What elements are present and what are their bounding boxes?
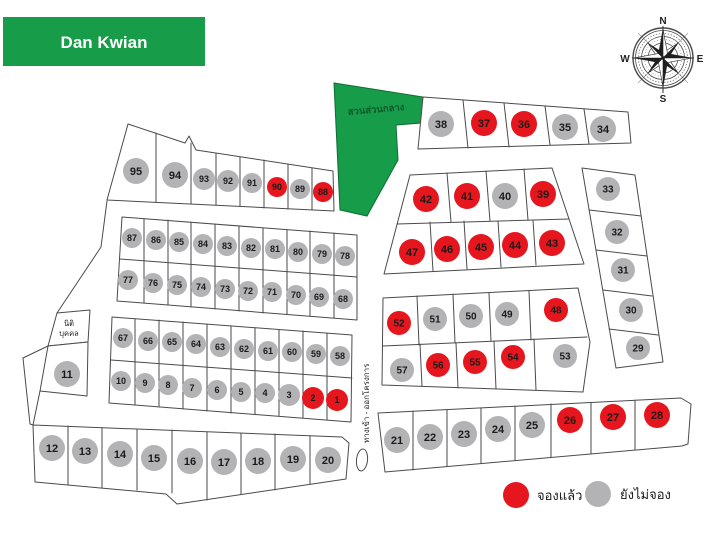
plot-1-number: 1: [334, 395, 339, 405]
plot-23-number: 23: [458, 429, 470, 441]
plot-84: 84: [193, 234, 213, 254]
plot-91: 91: [242, 173, 262, 193]
plot-44-number: 44: [509, 240, 522, 252]
entrance-road: ทางเข้า - ออกโครงการ: [355, 363, 371, 472]
plot-86: 86: [146, 230, 166, 250]
plot-90: 90: [267, 177, 287, 197]
plot-33-number: 33: [602, 185, 614, 196]
plot-25: 25: [519, 412, 545, 438]
plot-6-number: 6: [214, 385, 219, 395]
plot-69: 69: [309, 287, 329, 307]
plot-9: 9: [135, 373, 155, 393]
plot-62-number: 62: [239, 344, 249, 354]
plot-22: 22: [417, 424, 443, 450]
plot-88: 88: [313, 182, 333, 202]
plot-48-number: 48: [550, 306, 562, 317]
plot-67-number: 67: [118, 333, 128, 343]
plot-65-number: 65: [167, 337, 177, 347]
plot-81: 81: [265, 239, 285, 259]
plot-92: 92: [217, 170, 239, 192]
plot-3: 3: [278, 384, 300, 406]
plot-78-number: 78: [340, 251, 350, 261]
plot-25-number: 25: [526, 420, 538, 432]
plot-16: 16: [177, 448, 203, 474]
plot-4-number: 4: [262, 388, 267, 398]
plot-85: 85: [169, 232, 189, 252]
plot-31: 31: [611, 258, 635, 282]
plot-42: 42: [413, 186, 439, 212]
plot-15: 15: [141, 445, 167, 471]
site-plan-page: Dan Kwian: [0, 0, 720, 533]
plot-47: 47: [399, 239, 425, 265]
plot-50-number: 50: [465, 312, 477, 323]
plot-42-number: 42: [420, 194, 432, 206]
plot-53: 53: [553, 344, 577, 368]
legend-available-swatch: [585, 481, 611, 507]
plot-79: 79: [312, 244, 332, 264]
plot-39: 39: [530, 181, 556, 207]
plot-20: 20: [315, 447, 341, 473]
plot-56: 56: [426, 353, 450, 377]
compass-south-label: S: [660, 94, 667, 105]
plot-35: 35: [552, 114, 578, 140]
plot-8-number: 8: [165, 380, 170, 390]
plot-10-number: 10: [116, 376, 126, 386]
legend-available-label: ยังไม่จอง: [620, 487, 671, 502]
plot-2: 2: [302, 387, 324, 409]
plot-76: 76: [143, 273, 163, 293]
plot-67: 67: [113, 328, 133, 348]
plot-45-number: 45: [475, 242, 487, 254]
plot-62: 62: [234, 339, 254, 359]
compass-north-label: N: [659, 16, 666, 27]
plot-10: 10: [111, 371, 131, 391]
plot-72: 72: [238, 281, 258, 301]
site-map: Dan Kwian: [0, 0, 720, 533]
plot-34-number: 34: [597, 124, 610, 136]
plot-49-number: 49: [501, 310, 513, 321]
plot-6: 6: [207, 380, 227, 400]
plot-59: 59: [306, 344, 326, 364]
plot-74-number: 74: [196, 282, 206, 292]
plot-36-number: 36: [518, 119, 530, 131]
plot-55-number: 55: [469, 358, 481, 369]
plot-82: 82: [241, 238, 261, 258]
plot-55: 55: [463, 350, 487, 374]
plot-7-number: 7: [189, 383, 194, 393]
plot-90-number: 90: [272, 182, 282, 192]
plot-45: 45: [468, 234, 494, 260]
plot-34: 34: [590, 116, 616, 142]
plot-15-number: 15: [148, 453, 160, 465]
plot-77-number: 77: [123, 275, 133, 285]
plot-32: 32: [605, 220, 629, 244]
plot-13-number: 13: [79, 446, 91, 458]
plot-32-number: 32: [611, 228, 623, 239]
plot-78: 78: [335, 246, 355, 266]
plot-11-number: 11: [61, 369, 73, 381]
plot-94: 94: [162, 162, 188, 188]
plot-73-number: 73: [220, 284, 230, 294]
parcel-juristic-person: [48, 310, 90, 346]
plot-86-number: 86: [151, 235, 161, 245]
plot-92-number: 92: [223, 176, 233, 186]
plot-1: 1: [326, 389, 348, 411]
plot-29-number: 29: [632, 344, 644, 355]
plot-54-number: 54: [507, 353, 519, 364]
plot-89: 89: [290, 179, 310, 199]
plot-46-number: 46: [441, 244, 453, 256]
plot-65: 65: [162, 332, 182, 352]
plot-26: 26: [557, 407, 583, 433]
plot-70-number: 70: [291, 290, 301, 300]
plot-38: 38: [428, 111, 454, 137]
plot-13: 13: [72, 438, 98, 464]
plot-9-number: 9: [142, 378, 147, 388]
plot-80-number: 80: [293, 247, 303, 257]
plot-63: 63: [210, 337, 230, 357]
plot-5-number: 5: [238, 387, 243, 397]
plot-18-number: 18: [252, 456, 264, 468]
plot-36: 36: [511, 111, 537, 137]
juristic-person-label-line1: นิติ: [64, 319, 74, 328]
plot-19: 19: [280, 446, 306, 472]
plot-76-number: 76: [148, 278, 158, 288]
plot-59-number: 59: [311, 349, 321, 359]
plot-68-number: 68: [338, 294, 348, 304]
plot-2-number: 2: [310, 393, 315, 403]
plot-83: 83: [217, 236, 237, 256]
entrance-island: [355, 448, 368, 471]
plot-80: 80: [288, 242, 308, 262]
plot-22-number: 22: [424, 432, 436, 444]
plot-53-number: 53: [559, 352, 571, 363]
plot-33: 33: [596, 177, 620, 201]
project-title-banner: Dan Kwian: [3, 17, 205, 66]
plot-95-number: 95: [130, 166, 142, 178]
plot-70: 70: [286, 285, 306, 305]
plot-57: 57: [390, 358, 414, 382]
plot-93-number: 93: [199, 174, 209, 184]
plot-5: 5: [231, 382, 251, 402]
plot-37-number: 37: [478, 118, 490, 130]
plot-28-number: 28: [651, 410, 663, 422]
plot-72-number: 72: [243, 286, 253, 296]
plot-91-number: 91: [247, 178, 257, 188]
plot-40-number: 40: [499, 191, 511, 203]
plot-17: 17: [211, 449, 237, 475]
plot-12: 12: [39, 435, 65, 461]
plot-73: 73: [215, 279, 235, 299]
plot-40: 40: [492, 183, 518, 209]
plot-24-number: 24: [492, 424, 505, 436]
plot-49: 49: [495, 302, 519, 326]
compass-west-label: W: [620, 54, 630, 65]
plot-30: 30: [619, 298, 643, 322]
plot-94-number: 94: [169, 170, 182, 182]
plot-28: 28: [644, 402, 670, 428]
plot-3-number: 3: [286, 390, 291, 400]
plot-14-number: 14: [114, 449, 127, 461]
plot-37: 37: [471, 110, 497, 136]
plot-21-number: 21: [391, 435, 403, 447]
plot-29: 29: [626, 336, 650, 360]
plot-71: 71: [262, 282, 282, 302]
plot-14: 14: [107, 441, 133, 467]
plot-63-number: 63: [215, 342, 225, 352]
plot-87: 87: [122, 228, 142, 248]
plot-74: 74: [191, 277, 211, 297]
plot-19-number: 19: [287, 454, 299, 466]
plot-50: 50: [459, 304, 483, 328]
plot-61: 61: [258, 341, 278, 361]
plot-77: 77: [118, 270, 138, 290]
plot-41-number: 41: [461, 191, 473, 203]
entrance-road-label: ทางเข้า - ออกโครงการ: [361, 363, 371, 443]
plot-47-number: 47: [406, 247, 418, 259]
juristic-person-label-line2: บุคคล: [59, 329, 78, 338]
plot-54: 54: [501, 345, 525, 369]
plot-93: 93: [193, 168, 215, 190]
plot-75: 75: [167, 275, 187, 295]
plot-16-number: 16: [184, 456, 196, 468]
plot-4: 4: [255, 383, 275, 403]
plot-84-number: 84: [198, 239, 208, 249]
plot-61-number: 61: [263, 346, 273, 356]
plot-88-number: 88: [318, 187, 328, 197]
plot-60-number: 60: [287, 347, 297, 357]
plot-66: 66: [138, 331, 158, 351]
plot-69-number: 69: [314, 292, 324, 302]
plot-35-number: 35: [559, 122, 571, 134]
plot-95: 95: [123, 158, 149, 184]
plot-58: 58: [330, 346, 350, 366]
plot-12-number: 12: [46, 443, 58, 455]
plot-52: 52: [387, 311, 411, 335]
plot-75-number: 75: [172, 280, 182, 290]
legend-reserved-label: จองแล้ว: [537, 488, 582, 503]
plot-81-number: 81: [270, 244, 280, 254]
plot-64: 64: [186, 334, 206, 354]
plot-21: 21: [384, 427, 410, 453]
plot-7: 7: [182, 378, 202, 398]
plot-46: 46: [434, 236, 460, 262]
plot-89-number: 89: [295, 184, 305, 194]
compass-east-label: E: [697, 54, 704, 65]
plot-31-number: 31: [617, 266, 629, 277]
legend: จองแล้ว ยังไม่จอง: [503, 481, 671, 508]
plot-17-number: 17: [218, 457, 230, 469]
plot-39-number: 39: [537, 189, 549, 201]
plot-24: 24: [485, 416, 511, 442]
plot-83-number: 83: [222, 241, 232, 251]
plot-11: 11: [54, 361, 80, 387]
plot-44: 44: [502, 232, 528, 258]
plot-71-number: 71: [267, 287, 277, 297]
plot-79-number: 79: [317, 249, 327, 259]
plot-56-number: 56: [432, 361, 444, 372]
plot-30-number: 30: [625, 306, 637, 317]
plot-64-number: 64: [191, 339, 201, 349]
page-title: Dan Kwian: [61, 33, 148, 52]
plot-51-number: 51: [429, 315, 441, 326]
plot-66-number: 66: [143, 336, 153, 346]
plot-8: 8: [158, 375, 178, 395]
plot-68: 68: [333, 289, 353, 309]
plot-82-number: 82: [246, 243, 256, 253]
plot-57-number: 57: [396, 366, 408, 377]
plot-26-number: 26: [564, 415, 576, 427]
plot-85-number: 85: [174, 237, 184, 247]
plot-58-number: 58: [335, 351, 345, 361]
plot-41: 41: [454, 183, 480, 209]
plot-27-number: 27: [607, 412, 619, 424]
plot-38-number: 38: [435, 119, 447, 131]
plot-27: 27: [600, 404, 626, 430]
plot-23: 23: [451, 421, 477, 447]
plot-60: 60: [282, 342, 302, 362]
plot-48: 48: [544, 298, 568, 322]
plot-43: 43: [539, 230, 565, 256]
legend-reserved-swatch: [503, 482, 529, 508]
plot-43-number: 43: [546, 238, 558, 250]
compass-rose: N E S W: [620, 16, 703, 105]
plot-18: 18: [245, 448, 271, 474]
plot-20-number: 20: [322, 455, 334, 467]
plot-87-number: 87: [127, 233, 137, 243]
plot-51: 51: [423, 307, 447, 331]
plot-52-number: 52: [393, 319, 405, 330]
